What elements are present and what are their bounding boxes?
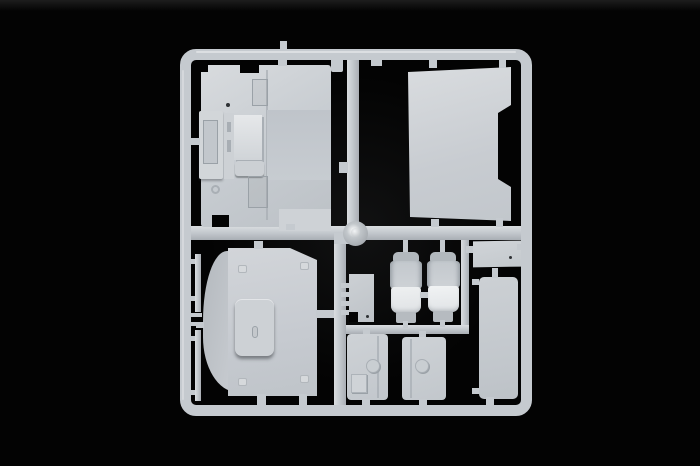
door-left-top-stub — [363, 328, 370, 334]
roof-pin-mark-tl — [238, 265, 247, 273]
engine-cover-lower — [235, 161, 264, 176]
door-right-bottom-stub — [419, 399, 427, 406]
trim-strip-lower-nub-2 — [191, 390, 195, 395]
seat-right-bottom-stem — [440, 320, 445, 327]
strip-connector-bar-2 — [191, 322, 200, 326]
floor-lower-recess — [248, 176, 268, 208]
roof-gate-right — [316, 310, 334, 318]
frame-left-highlight — [182, 70, 184, 400]
door-panel-right-cap — [415, 359, 429, 373]
strip-connector-bar-1 — [191, 313, 202, 317]
step-grille-notch — [349, 312, 358, 322]
seat-left-backrest — [390, 261, 422, 289]
hanger-nub — [280, 41, 287, 51]
trim-strip-lower-nub-1 — [191, 336, 195, 341]
cab-floor-top-notch — [240, 65, 259, 73]
cab-floor-right-shade — [267, 110, 331, 180]
trim-strip-upper-nub-1 — [191, 259, 195, 264]
back-wall-panel — [408, 67, 511, 221]
floor-washer-detail — [211, 185, 220, 194]
seat-left-bottom-stem — [403, 321, 408, 328]
trim-strip-upper-nub-2 — [191, 296, 195, 301]
roof-pin-mark-bl — [238, 378, 247, 386]
cab-floor-corner-notch — [201, 65, 208, 72]
seat-right-cushion — [428, 286, 459, 312]
shelf-panel-right-gate — [517, 244, 523, 250]
top-divider-runner — [347, 60, 359, 227]
roof-pin-mark-tr — [300, 262, 309, 270]
side-fairing-gate-bottom — [486, 397, 494, 406]
doghouse-left-recess — [203, 120, 218, 164]
door-left-bottom-stub — [362, 399, 370, 406]
trim-strip-lower — [195, 330, 201, 401]
roof-gate-bottom-1 — [257, 394, 266, 405]
back-wall-gate-tr — [499, 60, 506, 68]
cab-floor-bottom-gate — [286, 224, 295, 230]
side-fairing-gate-left-2 — [472, 388, 479, 394]
back-wall-gate-br — [496, 218, 503, 227]
injection-gate-center — [351, 228, 360, 237]
shelf-panel-dot — [509, 256, 512, 259]
right-quadrant-runner — [461, 240, 469, 333]
sunroof-latch-detail — [252, 326, 258, 338]
frame-top-highlight — [196, 51, 516, 53]
photo-stage — [0, 0, 700, 466]
shelf-panel-left-gate — [466, 246, 473, 253]
frame-tab-b — [371, 58, 382, 66]
cab-floor-pin-hole — [226, 103, 230, 107]
side-fairing-gate-left-1 — [472, 279, 479, 285]
cab-floor-top-gate — [278, 57, 287, 66]
cab-floor-left-gate — [191, 138, 200, 145]
door-panel-right-seam — [410, 339, 412, 398]
step-grille-dot — [366, 315, 369, 318]
cab-floor-upper-recess — [252, 79, 268, 106]
roof-gate-top — [254, 241, 263, 249]
door-panel-left-hatch — [351, 374, 367, 393]
divider-side-tab — [339, 162, 348, 173]
shelf-panel — [473, 241, 521, 268]
roof-gate-bottom-2 — [299, 394, 307, 405]
seat-right-backrest — [427, 261, 460, 288]
back-wall-gate-tl — [429, 59, 437, 68]
cab-floor-bottom-notch — [212, 215, 229, 227]
back-wall-gate-bl — [431, 219, 439, 227]
bottom-divider-runner — [334, 239, 346, 405]
door-right-top-stub — [419, 331, 426, 337]
engine-cover-box — [234, 115, 262, 160]
frame-tab-a — [331, 58, 343, 72]
side-fairing-panel — [479, 277, 518, 399]
top-haze-band — [0, 0, 700, 11]
trim-strip-upper — [195, 254, 201, 312]
doghouse-column-slot-1 — [227, 122, 231, 132]
doghouse-column-slot-2 — [227, 140, 231, 152]
door-panel-left-cap — [366, 359, 380, 373]
roof-pin-mark-br — [300, 375, 309, 383]
seat-left-cushion — [391, 287, 421, 313]
side-fairing-gate-top — [492, 268, 498, 278]
